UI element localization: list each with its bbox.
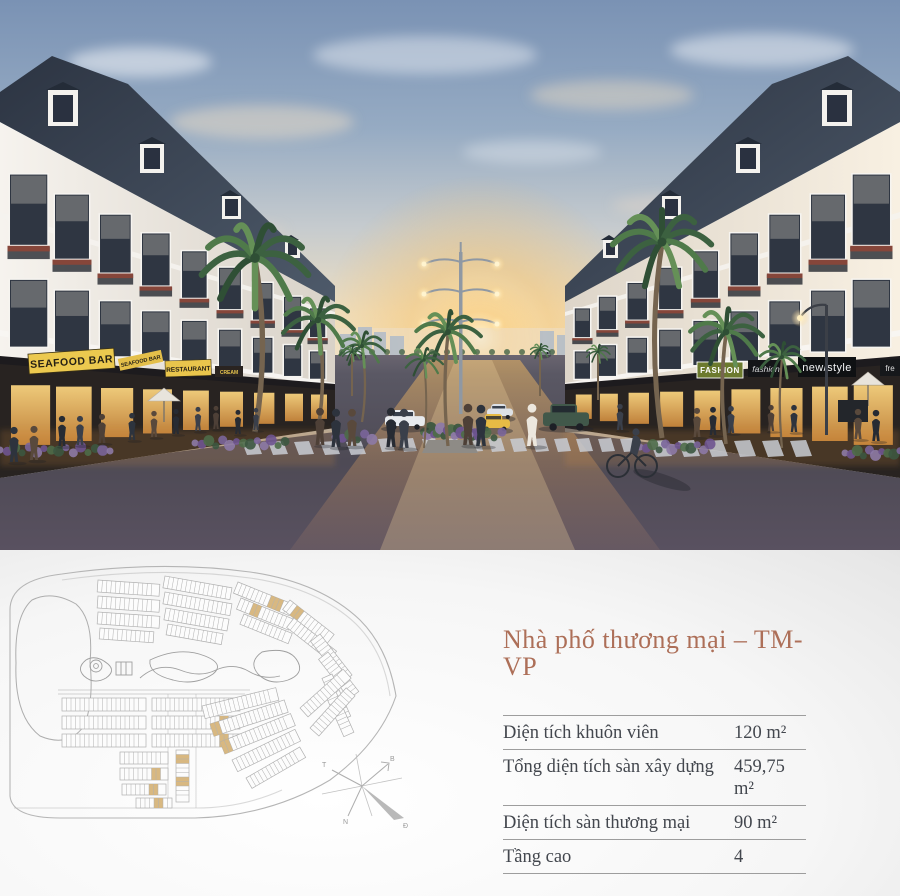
site-plan: B T N Đ bbox=[0, 558, 450, 888]
spec-row: Tổng diện tích sàn xây dựng 459,75 m² bbox=[503, 749, 806, 805]
plan-lot-blocks bbox=[62, 576, 359, 808]
sign-fre-partial: fre bbox=[880, 359, 900, 376]
svg-text:CREAM: CREAM bbox=[220, 370, 238, 376]
compass-needle bbox=[362, 786, 404, 820]
spec-value: 459,75 m² bbox=[734, 756, 806, 800]
compass: B T N Đ bbox=[322, 754, 408, 830]
spec-row: Diện tích sàn thương mại 90 m² bbox=[503, 805, 806, 839]
info-panel: Nhà phố thương mại – TM-VP Diện tích khu… bbox=[503, 626, 808, 874]
spec-label: Diện tích khuôn viên bbox=[503, 722, 734, 744]
sign-cream: CREAM bbox=[215, 366, 243, 377]
compass-south-label: N bbox=[343, 819, 348, 826]
compass-east-label: Đ bbox=[403, 823, 408, 830]
spec-row: Diện tích khuôn viên 120 m² bbox=[503, 715, 806, 749]
spec-table: Diện tích khuôn viên 120 m² Tổng diện tí… bbox=[503, 715, 806, 874]
compass-north-label: B bbox=[390, 756, 395, 763]
spec-value: 90 m² bbox=[734, 812, 806, 834]
spec-label: Diện tích sàn thương mại bbox=[503, 812, 734, 834]
sign-restaurant: RESTAURANT bbox=[165, 359, 212, 377]
section-title: Nhà phố thương mại – TM-VP bbox=[503, 626, 808, 681]
brochure-page: SEAFOOD BAR SEAFOOD BAR RESTAURANT CREAM… bbox=[0, 0, 900, 896]
plan-park bbox=[80, 650, 299, 682]
compass-west-label: T bbox=[322, 762, 327, 769]
spec-label: Tầng cao bbox=[503, 846, 734, 868]
spec-value: 4 bbox=[734, 846, 806, 868]
spec-row: Tầng cao 4 bbox=[503, 839, 806, 874]
spec-label: Tổng diện tích sàn xây dựng bbox=[503, 756, 734, 778]
info-section: B T N Đ Nhà phố thương mại – TM-VP Diện … bbox=[0, 550, 900, 896]
svg-text:FASHION: FASHION bbox=[700, 366, 740, 375]
spec-value: 120 m² bbox=[734, 722, 806, 744]
svg-text:fre: fre bbox=[885, 364, 895, 373]
street-render: SEAFOOD BAR SEAFOOD BAR RESTAURANT CREAM… bbox=[0, 0, 900, 550]
street-render-svg: SEAFOOD BAR SEAFOOD BAR RESTAURANT CREAM… bbox=[0, 0, 900, 550]
